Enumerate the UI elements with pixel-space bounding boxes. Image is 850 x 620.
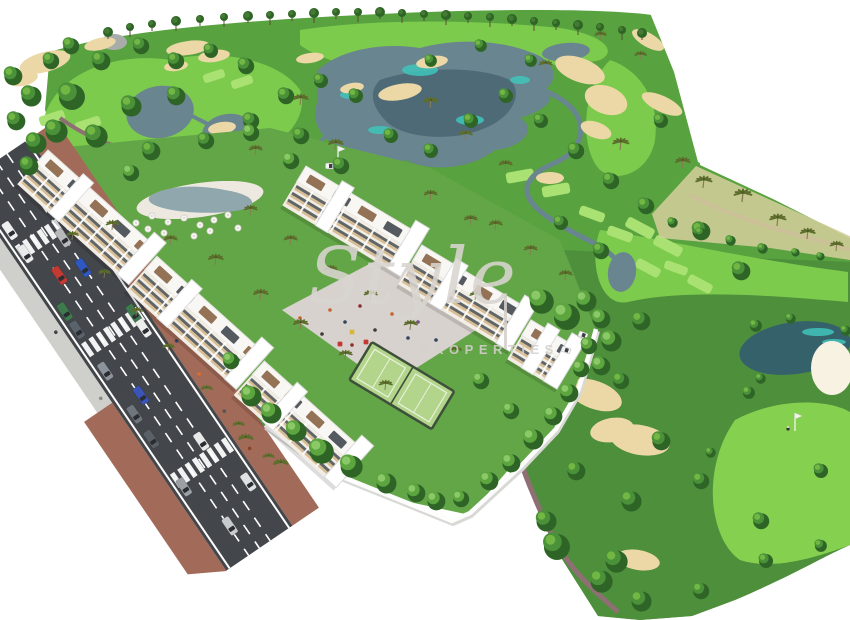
parasol: [235, 225, 241, 231]
parasol: [149, 213, 155, 219]
sand-bunker: [536, 172, 564, 184]
render-scene: [0, 0, 850, 620]
person: [343, 320, 347, 324]
parasol: [145, 226, 151, 232]
playground-equipment: [338, 342, 343, 347]
parasol: [191, 233, 197, 239]
tree: [7, 111, 26, 130]
parasol: [133, 220, 139, 226]
parasol: [165, 219, 171, 225]
person: [434, 338, 438, 342]
tree: [21, 85, 42, 106]
person: [406, 336, 410, 340]
tree: [4, 66, 23, 85]
person: [416, 320, 420, 324]
horizon-tree: [196, 15, 204, 26]
person: [350, 343, 354, 347]
parasol: [207, 228, 213, 234]
property-render-image: Style PROPERTIES: [0, 0, 850, 620]
playground-equipment: [364, 340, 369, 345]
person: [320, 332, 324, 336]
horizon-tree: [243, 11, 253, 23]
putting-green: [713, 402, 850, 564]
parasol: [225, 212, 231, 218]
person: [328, 308, 332, 312]
water-highlight: [802, 328, 834, 336]
person: [373, 328, 377, 332]
parasol: [181, 215, 187, 221]
person: [390, 312, 394, 316]
horizon-tree: [148, 20, 156, 31]
parasol: [197, 222, 203, 228]
parasol: [211, 217, 217, 223]
water-highlight: [510, 76, 530, 84]
playground-equipment: [350, 330, 355, 335]
person: [358, 304, 362, 308]
parasol: [161, 230, 167, 236]
